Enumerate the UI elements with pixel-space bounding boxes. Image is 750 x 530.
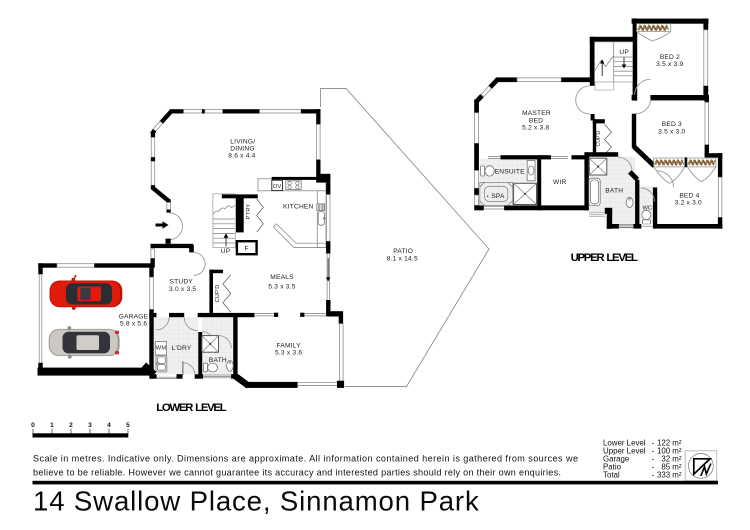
- svg-text:Scale in metres. Indicative on: Scale in metres. Indicative only. Dimens…: [33, 454, 578, 464]
- svg-text:L'DRY: L'DRY: [172, 345, 192, 352]
- svg-text:BATH: BATH: [209, 357, 227, 364]
- svg-text:WC: WC: [643, 205, 653, 211]
- svg-text:LIVING/: LIVING/: [230, 138, 255, 145]
- svg-text:BATH: BATH: [605, 187, 623, 194]
- svg-text:PTRY: PTRY: [246, 204, 252, 220]
- svg-text:5.8 x 5.6: 5.8 x 5.6: [120, 320, 147, 327]
- svg-text:5: 5: [126, 422, 130, 429]
- svg-text:1: 1: [50, 422, 54, 429]
- svg-text:WM: WM: [156, 345, 167, 351]
- svg-text:CUP'D: CUP'D: [215, 285, 221, 303]
- svg-text:-: -: [652, 470, 655, 479]
- svg-text:0: 0: [31, 422, 35, 429]
- svg-text:14 Swallow Place, Sinnamon Par: 14 Swallow Place, Sinnamon Park: [33, 486, 480, 517]
- svg-text:5.3 x 3.6: 5.3 x 3.6: [275, 350, 302, 357]
- svg-text:3.5 x 3.0: 3.5 x 3.0: [658, 128, 685, 135]
- svg-text:DINING: DINING: [230, 145, 254, 152]
- svg-text:8.1 x 14.5: 8.1 x 14.5: [387, 255, 418, 262]
- svg-text:BED: BED: [529, 117, 543, 124]
- svg-text:BED 4: BED 4: [679, 192, 699, 199]
- svg-text:PATIO: PATIO: [393, 248, 413, 255]
- svg-text:F: F: [244, 245, 248, 252]
- svg-text:3.2 x 3.0: 3.2 x 3.0: [675, 200, 702, 207]
- svg-text:3: 3: [88, 422, 92, 429]
- svg-text:333 m²: 333 m²: [657, 470, 682, 479]
- svg-text:SPA: SPA: [491, 193, 505, 200]
- svg-text:3.5 x 3.9: 3.5 x 3.9: [656, 61, 683, 68]
- svg-text:UP: UP: [619, 49, 629, 56]
- svg-text:2: 2: [69, 422, 73, 429]
- svg-text:Total: Total: [603, 470, 620, 479]
- svg-text:CUP'D: CUP'D: [596, 131, 602, 147]
- svg-text:UPPER LEVEL: UPPER LEVEL: [571, 252, 638, 264]
- svg-text:UP: UP: [221, 248, 231, 255]
- svg-text:FAMILY: FAMILY: [276, 342, 301, 349]
- svg-text:BED 3: BED 3: [662, 121, 682, 128]
- svg-text:OV: OV: [273, 184, 282, 190]
- svg-text:believe to be reliable. Howeve: believe to be reliable. However we canno…: [33, 468, 561, 478]
- svg-text:STUDY: STUDY: [169, 278, 193, 285]
- svg-text:4: 4: [107, 422, 111, 429]
- svg-text:KITCHEN: KITCHEN: [283, 204, 313, 211]
- svg-text:BED 2: BED 2: [660, 54, 680, 61]
- svg-text:GARAGE: GARAGE: [119, 313, 149, 320]
- svg-text:5.2 x 3.8: 5.2 x 3.8: [522, 124, 549, 131]
- svg-text:5.3 x 3.5: 5.3 x 3.5: [268, 283, 295, 290]
- svg-text:WIR: WIR: [553, 179, 566, 186]
- svg-text:MEALS: MEALS: [270, 274, 294, 281]
- svg-text:8.6 x 4.4: 8.6 x 4.4: [228, 153, 255, 160]
- svg-text:ENSUITE: ENSUITE: [495, 169, 525, 176]
- svg-text:MASTER: MASTER: [522, 110, 551, 117]
- svg-text:3.0 x 3.5: 3.0 x 3.5: [169, 286, 196, 293]
- svg-text:LOWER LEVEL: LOWER LEVEL: [156, 402, 227, 414]
